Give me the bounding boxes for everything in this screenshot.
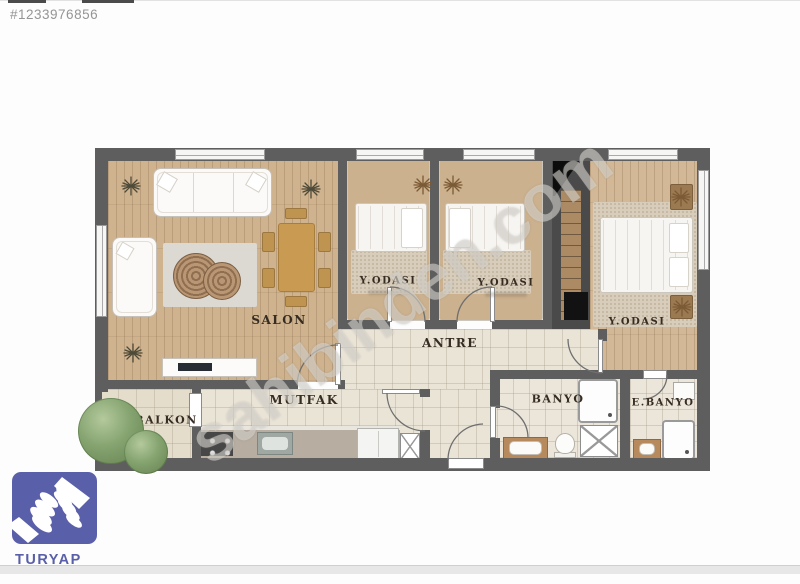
room-label-ensuite: E.BANYO <box>632 398 695 409</box>
room-label-balcony: BALKON <box>134 414 197 427</box>
door-arc <box>448 424 483 460</box>
door-arc <box>387 393 425 431</box>
top-crop-artifact <box>8 0 46 3</box>
listing-id: #1233976856 <box>10 7 98 22</box>
room-label-kitchen: MUTFAK <box>269 393 338 407</box>
room-label-bedroom3: Y.ODASI <box>609 317 666 328</box>
plant-icon <box>414 176 691 316</box>
door-arc <box>643 375 667 399</box>
tree-icon <box>124 430 168 474</box>
room-label-salon: SALON <box>251 313 306 327</box>
dimension-text-blur <box>485 292 527 297</box>
door-arc <box>297 345 338 386</box>
door-arc <box>496 406 528 438</box>
floor-plan-image: SALON Y.ODASI Y.ODASI Y.ODASI ANTRE MUTF… <box>85 140 717 475</box>
room-label-bathroom: BANYO <box>532 393 585 406</box>
dimension-text-blur <box>368 290 410 295</box>
brand-name: TURYAP <box>15 552 107 568</box>
listing-photo-page: { "listing": { "id": "#1233976856" }, "w… <box>0 0 800 573</box>
brand-logo: TURYAP <box>12 472 107 568</box>
room-label-antre: ANTRE <box>422 336 478 350</box>
plant-icon <box>122 177 320 362</box>
top-crop-artifact <box>82 0 134 3</box>
room-label-bedroom2: Y.ODASI <box>478 278 535 289</box>
handshake-icon <box>12 472 97 545</box>
room-label-bedroom1: Y.ODASI <box>360 276 417 287</box>
door-arc <box>568 339 602 373</box>
